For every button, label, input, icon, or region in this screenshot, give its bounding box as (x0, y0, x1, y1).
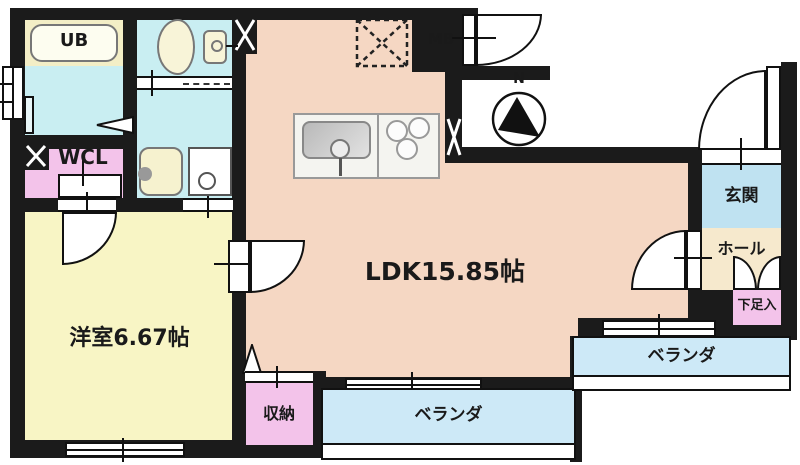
veranda-east: ベランダ (572, 336, 791, 391)
pillar-x-icon (233, 16, 257, 54)
room-label-storage: 収納 (245, 405, 313, 423)
toilet-flush-icon (211, 40, 223, 52)
wall (781, 62, 797, 340)
wall (232, 445, 326, 458)
room-label-veranda-east: ベランダ (574, 347, 789, 366)
closet-door (58, 174, 122, 198)
floor-plan: ベランダ ベランダ UB WCL 洋室6.67帖 LDK15.85帖 MB 玄関… (0, 0, 800, 465)
room-label-hall: ホール (702, 240, 781, 258)
window (24, 96, 34, 134)
stove-burner-icon (396, 138, 418, 160)
door-leaf (228, 240, 250, 293)
room-label-shoe: 下足入 (733, 299, 781, 313)
fixture-tick (226, 45, 238, 47)
pillar-x-icon (446, 114, 462, 160)
fold-door-icon (96, 116, 134, 134)
toilet-icon (157, 19, 195, 75)
door-tick (276, 366, 278, 388)
door-tick (151, 70, 153, 96)
fold-door-icon (242, 344, 262, 374)
window-tick (0, 101, 12, 103)
window-tick (0, 83, 12, 85)
ceiling-opening-marker (355, 18, 409, 68)
stove-burner-icon (408, 117, 430, 139)
wall (232, 293, 246, 458)
wall (123, 8, 137, 212)
wall (445, 147, 702, 163)
compass-north-label: N (505, 72, 533, 87)
door-tick (214, 263, 250, 265)
door-tick (740, 138, 742, 170)
meter-box-door-leaf (462, 14, 476, 66)
ldk-floor (245, 163, 702, 325)
washer-drain-icon (198, 172, 216, 190)
veranda-south: ベランダ (321, 388, 576, 460)
door-swing-arc (476, 14, 542, 66)
window-tick (122, 438, 124, 462)
entry-door-leaf (766, 66, 781, 150)
room-label-western: 洋室6.67帖 (27, 327, 232, 351)
door-leaf (686, 230, 702, 290)
faucet-icon (330, 139, 350, 159)
kitchen-counter-divider (377, 114, 379, 178)
vanity-drain-icon (138, 167, 152, 181)
room-label-veranda-south: ベランダ (323, 406, 574, 425)
north-compass-icon (490, 90, 548, 148)
room-label-ldk: LDK15.85帖 (330, 258, 560, 286)
window (65, 442, 185, 457)
room-label-wcl: WCL (44, 146, 122, 168)
room-label-ub: UB (30, 31, 118, 51)
faucet-stem (339, 158, 342, 176)
door-threshold (245, 371, 313, 383)
window (2, 66, 24, 120)
entry-door-swing-arc (698, 70, 766, 150)
room-label-genkan: 玄関 (702, 187, 781, 206)
room-label-mb: MB (420, 31, 462, 48)
